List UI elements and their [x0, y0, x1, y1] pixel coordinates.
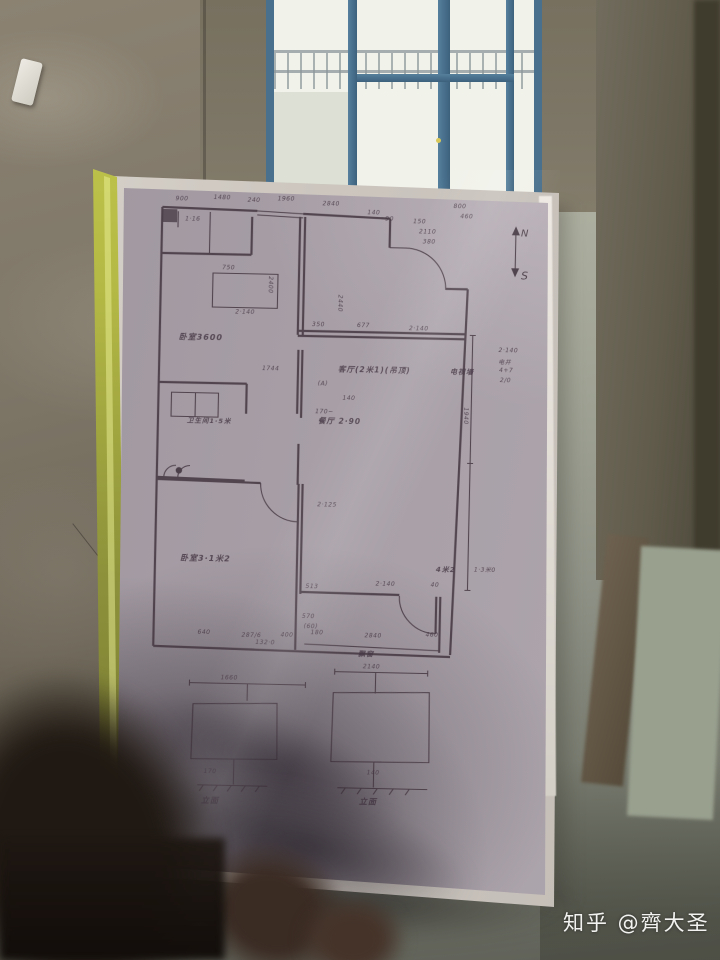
plan-annotation: 677	[357, 322, 370, 329]
plan-annotation: 640	[197, 629, 210, 636]
plan-annotation: (A)	[318, 380, 328, 387]
window-transom	[357, 74, 514, 82]
plan-annotation: 132·0	[255, 639, 275, 646]
plan-annotation: 电视墙	[450, 367, 474, 378]
zhihu-watermark: 知乎 @齊大圣	[563, 907, 710, 937]
plan-annotation: 2110	[419, 228, 436, 235]
window-mullion	[348, 0, 357, 193]
plan-annotation: 4+7	[499, 367, 513, 374]
plan-annotation: 1744	[262, 365, 279, 372]
plan-annotation: 380	[423, 238, 436, 245]
plan-annotation: 2440	[336, 295, 343, 312]
plan-annotation: 餐厅 2·90	[318, 415, 361, 427]
railing-pickets	[274, 53, 534, 89]
window-mullion	[438, 0, 450, 193]
plan-annotation: 电井	[498, 357, 511, 366]
plan-annotation: 2·140	[409, 325, 429, 332]
plan-annotation: 40	[430, 582, 439, 589]
glass-speck	[436, 138, 441, 143]
plan-annotation: 1660	[220, 674, 237, 681]
plan-annotation: 1·16	[185, 215, 201, 222]
plan-annotation: 900	[176, 195, 189, 202]
plan-annotation: 800	[453, 203, 466, 210]
plan-annotation: 卫生间1·5米	[187, 414, 232, 425]
plan-annotation: 2·125	[317, 501, 337, 508]
photo-unfinished-room: N S 卧室3600客厅(2米1)(吊顶)电视墙餐厅 2·90卫生间1·5米卧室…	[0, 0, 720, 960]
plan-annotation: 2·140	[498, 347, 518, 354]
hand-dark-corner	[0, 838, 225, 960]
compass-north-label: N	[521, 228, 529, 239]
plan-annotation: 卧室3600	[179, 331, 223, 343]
plan-annotation: 570	[302, 613, 315, 620]
plan-annotation: 460	[460, 213, 473, 220]
plan-annotation: 90	[385, 216, 394, 223]
plan-annotation: 卧室3·1米2	[180, 552, 231, 564]
plan-annotation: 240	[247, 197, 260, 204]
balcony-railing	[274, 50, 534, 92]
balcony-window	[266, 0, 542, 202]
doorway-floor-beyond	[627, 546, 720, 820]
plan-annotation: 513	[305, 583, 318, 590]
plan-annotation: 2840	[364, 632, 381, 639]
plan-annotation: 400	[280, 632, 293, 639]
plan-annotation: 2/0	[500, 377, 511, 384]
plan-annotation: 150	[413, 218, 426, 225]
plan-annotation: 飘窗	[358, 649, 374, 659]
window-glass-lower	[274, 92, 348, 193]
plan-annotation: 1940	[462, 407, 469, 424]
plan-annotation: 170~	[315, 408, 334, 415]
plan-annotation: 1480	[214, 194, 231, 201]
plan-annotation: 2400	[267, 276, 274, 293]
plan-annotation: 1960	[278, 195, 295, 202]
plan-annotation: 460	[425, 632, 438, 639]
plan-annotation: 1·3米0	[474, 565, 496, 574]
plan-annotation: 750	[222, 264, 235, 271]
window-mullion	[506, 0, 514, 193]
plan-annotation: 2·140	[375, 580, 395, 587]
plan-annotation: 客厅(2米1)(吊顶)	[338, 364, 411, 377]
plan-annotation: 4米2	[436, 565, 456, 575]
plan-annotation: 2·140	[235, 308, 255, 315]
plan-annotation: 2840	[322, 200, 339, 207]
compass-south-label: S	[521, 269, 528, 282]
plan-annotation: 287/6	[241, 632, 261, 639]
plan-annotation: 140	[342, 395, 355, 402]
plan-annotation: 180	[310, 629, 323, 636]
plan-annotation: 2140	[363, 663, 380, 670]
plan-annotation: 140	[367, 209, 380, 216]
plan-annotation: 350	[312, 321, 325, 328]
wall-right-dark-edge	[694, 0, 720, 600]
